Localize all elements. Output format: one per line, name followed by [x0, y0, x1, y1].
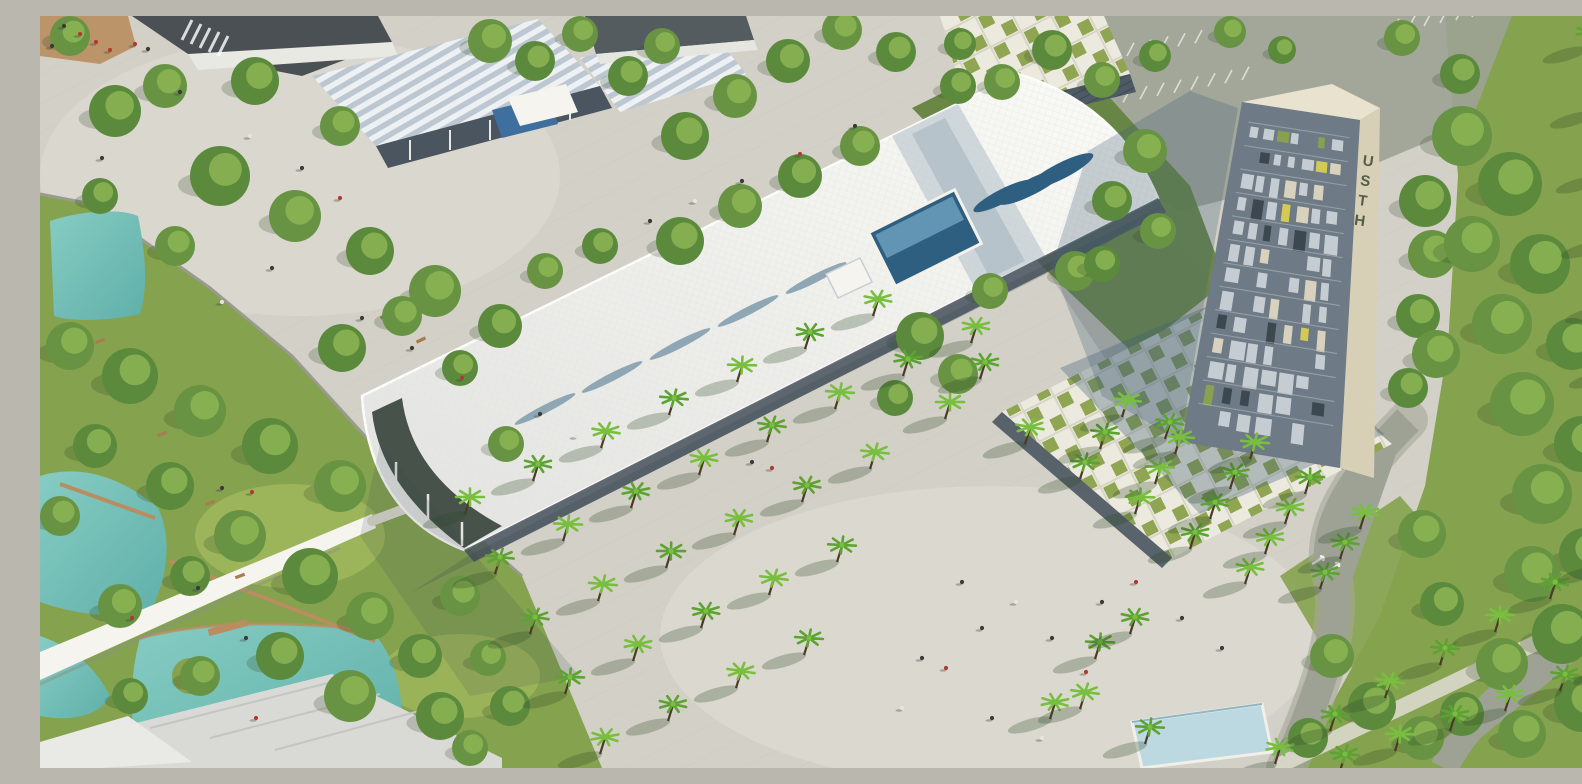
person: [338, 196, 342, 200]
palm-crown: [671, 395, 676, 400]
tree-highlight: [780, 44, 804, 68]
palm-crown: [771, 575, 776, 580]
palm-crown: [1307, 474, 1312, 479]
tree-highlight: [528, 46, 550, 68]
tower-window: [1300, 328, 1309, 342]
tower-window: [1293, 230, 1307, 253]
tower-window: [1253, 296, 1266, 313]
palm-crown: [739, 362, 744, 367]
person: [1040, 736, 1044, 740]
person: [133, 42, 137, 46]
tower-window: [1287, 156, 1295, 168]
person: [1100, 600, 1104, 604]
tree-highlight: [1224, 20, 1242, 38]
palm-crown: [467, 494, 472, 499]
palm-crown: [807, 329, 812, 334]
tree-highlight: [425, 271, 454, 300]
tree-highlight: [732, 189, 756, 213]
tower-window: [1311, 402, 1324, 417]
tree-highlight: [453, 354, 473, 374]
palm-crown: [875, 296, 880, 301]
tree-highlight: [1522, 552, 1553, 583]
palm-crown: [635, 641, 640, 646]
tree-highlight: [1498, 159, 1533, 194]
tree-highlight: [333, 330, 359, 356]
person: [920, 656, 924, 660]
tree-highlight: [87, 429, 111, 453]
tower-window: [1296, 206, 1309, 224]
palm-crown: [532, 614, 537, 619]
palm-crown: [839, 542, 844, 547]
tree-highlight: [1453, 59, 1475, 81]
tree-highlight: [53, 501, 75, 523]
palm-crown: [947, 399, 952, 404]
palm-crown: [497, 554, 502, 559]
person: [990, 716, 994, 720]
tree-highlight: [1451, 113, 1484, 146]
person: [78, 32, 82, 36]
tower-window: [1318, 137, 1325, 149]
tower-window: [1318, 306, 1327, 323]
person: [900, 706, 904, 710]
tree-highlight: [246, 63, 272, 89]
tower-window: [1290, 133, 1299, 145]
tree-highlight: [361, 233, 387, 259]
tower-window: [1259, 152, 1270, 164]
palm-crown: [1497, 612, 1502, 617]
palm-crown: [603, 428, 608, 433]
tree-highlight: [1434, 587, 1458, 611]
tree-highlight: [193, 661, 215, 683]
person: [538, 412, 542, 416]
person: [244, 636, 248, 640]
tree-highlight: [888, 384, 908, 404]
person: [220, 486, 224, 490]
palm-crown: [973, 323, 978, 328]
tree-highlight: [951, 72, 971, 92]
tower-window: [1322, 259, 1332, 278]
tree-highlight: [1513, 716, 1539, 742]
tree-highlight: [168, 231, 190, 253]
person: [648, 219, 652, 223]
person: [94, 40, 98, 44]
palm-crown: [872, 449, 877, 454]
tree-highlight: [492, 309, 516, 333]
palm-crown: [982, 359, 987, 364]
person: [750, 460, 754, 464]
tree-highlight: [120, 354, 151, 385]
tree-highlight: [93, 182, 113, 202]
tree-highlight: [727, 79, 751, 103]
tower-window: [1299, 182, 1308, 196]
tree-highlight: [1149, 44, 1167, 62]
palm-crown: [736, 515, 741, 520]
person: [254, 716, 258, 720]
person: [1220, 646, 1224, 650]
person: [693, 199, 697, 203]
tree-highlight: [1395, 24, 1415, 44]
tree-highlight: [105, 91, 134, 120]
tower-window: [1233, 317, 1247, 334]
tree-highlight: [1095, 66, 1115, 86]
tower-window: [1277, 131, 1290, 143]
tree-highlight: [112, 589, 136, 613]
tower-window: [1263, 129, 1275, 141]
person: [740, 179, 744, 183]
tower-window: [1236, 414, 1251, 433]
palm-crown: [565, 521, 570, 526]
palm-crown: [668, 548, 673, 553]
person: [300, 166, 304, 170]
tree-highlight: [655, 32, 675, 52]
tree-highlight: [340, 676, 369, 705]
tree-highlight: [853, 131, 875, 153]
tower-window: [1260, 370, 1276, 387]
tower-window: [1330, 163, 1341, 175]
palm-crown: [703, 608, 708, 613]
person: [248, 134, 252, 138]
person: [960, 580, 964, 584]
tree-highlight: [792, 159, 816, 183]
tree-highlight: [123, 682, 143, 702]
tower-window: [1324, 235, 1339, 256]
person: [220, 300, 224, 304]
tree-highlight: [300, 554, 331, 585]
tree-highlight: [61, 328, 87, 354]
tower-window: [1316, 161, 1328, 173]
tower-window: [1275, 396, 1291, 415]
tree-highlight: [1045, 35, 1067, 57]
tree-highlight: [230, 516, 259, 545]
palm-crown: [1552, 579, 1557, 584]
person: [944, 666, 948, 670]
palm-crown: [701, 455, 706, 460]
palm-crown: [1132, 614, 1137, 619]
tree-highlight: [1410, 299, 1434, 323]
tower-window: [1332, 139, 1344, 151]
palm-crown: [905, 356, 910, 361]
palm-crown: [806, 635, 811, 640]
campus-aerial-view: USTH: [40, 16, 1582, 768]
palm-crown: [1452, 711, 1457, 716]
tree-highlight: [538, 257, 558, 277]
person: [1084, 670, 1088, 674]
tree-highlight: [161, 468, 187, 494]
palm-crown: [738, 668, 743, 673]
palm-crown: [602, 734, 607, 739]
tower-window: [1313, 185, 1324, 201]
tower-window: [1311, 208, 1321, 224]
person: [250, 490, 254, 494]
tree-highlight: [671, 223, 697, 249]
tree-highlight: [676, 118, 702, 144]
tower-window: [1288, 277, 1299, 293]
tree-highlight: [1492, 644, 1521, 673]
tree-highlight: [395, 301, 417, 323]
tree-highlight: [482, 24, 506, 48]
tower-window: [1207, 361, 1224, 380]
tree-highlight: [412, 639, 436, 663]
tree-highlight: [183, 561, 205, 583]
palm-crown: [1332, 711, 1337, 716]
person: [146, 47, 150, 51]
person: [1050, 636, 1054, 640]
tree-highlight: [1427, 336, 1453, 362]
palm-crown: [1027, 424, 1032, 429]
person: [360, 316, 364, 320]
tree-highlight: [983, 277, 1003, 297]
person: [980, 626, 984, 630]
palm-crown: [1147, 724, 1152, 729]
tree-highlight: [1324, 639, 1348, 663]
palm-crown: [1362, 509, 1367, 514]
person: [798, 152, 802, 156]
tower-window: [1218, 411, 1231, 427]
tower-window: [1309, 232, 1321, 249]
person: [108, 48, 112, 52]
tree-highlight: [271, 638, 297, 664]
tree-highlight: [285, 196, 314, 225]
tower-window: [1229, 340, 1247, 361]
tree-highlight: [1531, 471, 1564, 504]
palm-crown: [670, 701, 675, 706]
tree-highlight: [593, 232, 613, 252]
tree-highlight: [1510, 379, 1545, 414]
tree-highlight: [503, 691, 525, 713]
palm-crown: [837, 389, 842, 394]
architectural-rendering: USTH: [40, 16, 1582, 768]
palm-crown: [1277, 744, 1282, 749]
person: [410, 346, 414, 350]
tower-window: [1284, 180, 1297, 199]
palm-crown: [1387, 678, 1392, 683]
person: [574, 434, 578, 438]
tree-highlight: [911, 318, 937, 344]
tree-highlight: [1401, 373, 1423, 395]
tree-highlight: [1413, 516, 1439, 542]
tower-window: [1296, 375, 1309, 389]
palm-crown: [1124, 397, 1129, 402]
person: [853, 124, 857, 128]
person: [196, 586, 200, 590]
tree-highlight: [1137, 134, 1161, 158]
palm-crown: [1342, 751, 1347, 756]
palm-crown: [1252, 439, 1257, 444]
person: [178, 90, 182, 94]
palm-crown: [1177, 434, 1182, 439]
person: [270, 266, 274, 270]
palm-crown: [1562, 671, 1567, 676]
tree-highlight: [1277, 39, 1292, 54]
tree-highlight: [1415, 181, 1444, 210]
person: [130, 616, 134, 620]
tower-window: [1291, 423, 1305, 445]
tree-highlight: [621, 61, 643, 83]
tree-highlight: [209, 153, 242, 186]
person: [62, 24, 66, 28]
tree-highlight: [361, 598, 387, 624]
palm-crown: [1397, 731, 1402, 736]
tree-highlight: [1462, 222, 1493, 253]
tree-highlight: [190, 391, 219, 420]
tree-highlight: [889, 37, 911, 59]
tree-highlight: [63, 21, 85, 43]
tower-window: [1315, 354, 1325, 370]
tower-window: [1307, 256, 1321, 272]
tower-window: [1304, 280, 1317, 302]
tower-window: [1277, 372, 1294, 395]
tree-highlight: [157, 69, 181, 93]
palm-crown: [1167, 419, 1172, 424]
person: [1014, 600, 1018, 604]
pond: [50, 211, 145, 320]
palm-crown: [600, 581, 605, 586]
palm-crown: [1507, 691, 1512, 696]
tree-highlight: [260, 424, 291, 455]
palm-crown: [1082, 689, 1087, 694]
tree-highlight: [954, 32, 972, 50]
tower-window: [1316, 330, 1326, 352]
person: [1134, 580, 1138, 584]
tower-window: [1320, 282, 1329, 301]
tree-highlight: [431, 698, 457, 724]
palm-crown: [633, 488, 638, 493]
person: [1180, 616, 1184, 620]
tree-highlight: [1529, 241, 1562, 274]
tower-window: [1301, 159, 1314, 172]
palm-crown: [1442, 645, 1447, 650]
palm-crown: [1102, 429, 1107, 434]
tower-window: [1326, 211, 1338, 225]
tree-highlight: [333, 111, 355, 133]
tree-highlight: [499, 430, 519, 450]
palm-crown: [567, 674, 572, 679]
tree-highlight: [995, 68, 1015, 88]
person: [100, 156, 104, 160]
person: [50, 44, 54, 48]
tree-highlight: [1151, 217, 1171, 237]
tree-highlight: [1095, 250, 1115, 270]
tree-highlight: [1105, 186, 1127, 208]
palm-crown: [769, 422, 774, 427]
tree-highlight: [463, 734, 483, 754]
tree-highlight: [573, 20, 593, 40]
person: [770, 466, 774, 470]
tree-highlight: [1491, 301, 1524, 334]
palm-crown: [1052, 699, 1057, 704]
tower-window: [1256, 272, 1268, 288]
tower-window: [1224, 267, 1240, 283]
tower-window: [1240, 173, 1254, 189]
palm-crown: [535, 461, 540, 466]
palm-crown: [804, 482, 809, 487]
person: [460, 376, 464, 380]
tree-highlight: [330, 466, 359, 495]
tower-window: [1257, 393, 1274, 414]
